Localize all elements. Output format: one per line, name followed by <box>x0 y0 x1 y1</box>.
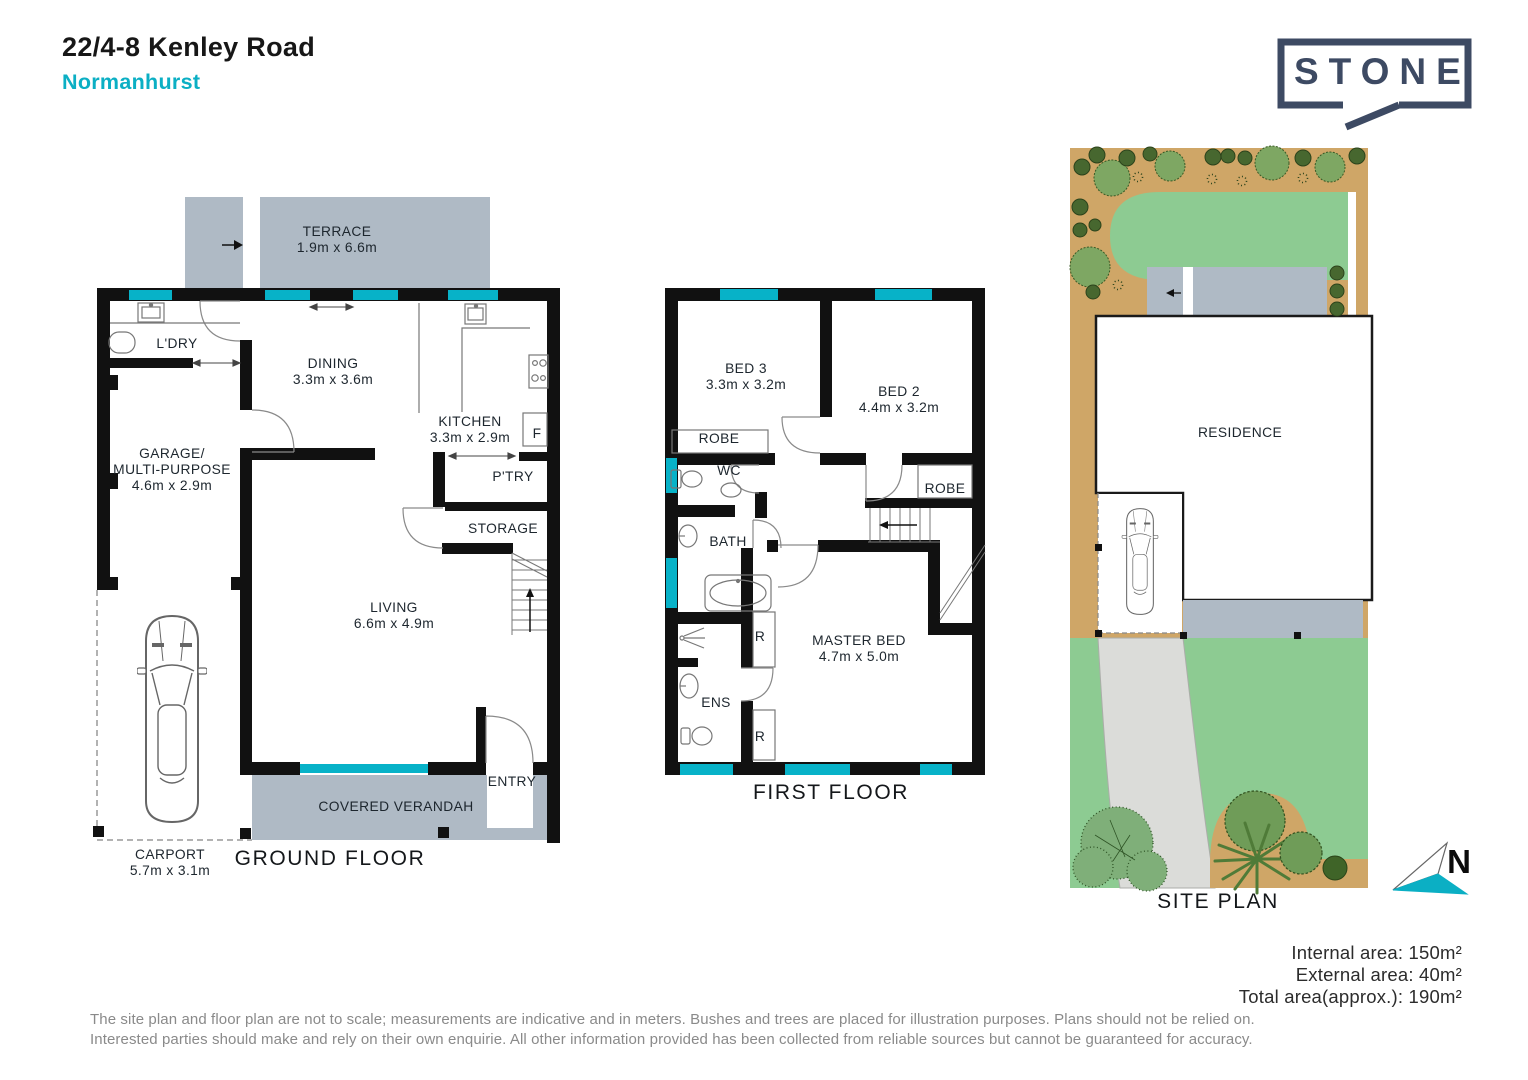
room-label-terrace: TERRACE 1.9m x 6.6m <box>297 224 377 256</box>
car-icon <box>1122 509 1158 615</box>
room-label-pantry: P'TRY <box>492 469 533 485</box>
logo-wordmark: STONE <box>1284 51 1466 93</box>
room-label-living: LIVING 6.6m x 4.9m <box>354 600 434 632</box>
site-terrace <box>1147 267 1327 318</box>
room-label-bath: BATH <box>709 534 746 550</box>
disclaimer-line-1: The site plan and floor plan are not to … <box>90 1010 1255 1030</box>
room-label-robe1: ROBE <box>699 431 740 447</box>
room-label-bed3: BED 3 3.3m x 3.2m <box>706 361 786 393</box>
room-label-carport: CARPORT 5.7m x 3.1m <box>130 847 210 879</box>
room-label-wc: WC <box>717 463 741 479</box>
internal-area: Internal area: 150m² <box>1239 942 1462 964</box>
residence-label: RESIDENCE <box>1198 425 1282 441</box>
total-area: Total area(approx.): 190m² <box>1239 986 1462 1008</box>
car-icon <box>137 616 207 822</box>
north-label: N <box>1447 843 1471 881</box>
site-path-strip <box>1348 192 1356 318</box>
room-label-robe2: ROBE <box>925 481 966 497</box>
page-title: 22/4-8 Kenley Road <box>62 32 315 63</box>
room-label-robe-r2: R <box>755 729 765 745</box>
room-label-robe-r1: R <box>755 629 765 645</box>
room-label-fridge: F <box>533 426 542 442</box>
room-label-garage: GARAGE/ MULTI-PURPOSE 4.6m x 2.9m <box>113 446 231 494</box>
ground-stairs <box>512 553 547 635</box>
room-label-entry: ENTRY <box>488 774 537 790</box>
external-area: External area: 40m² <box>1239 964 1462 986</box>
first-stairs <box>868 508 985 620</box>
site-plan-title: SITE PLAN <box>1157 894 1279 910</box>
disclaimer: The site plan and floor plan are not to … <box>90 1010 1255 1049</box>
room-label-master-bed: MASTER BED 4.7m x 5.0m <box>812 633 906 665</box>
room-label-bed2: BED 2 4.4m x 3.2m <box>859 384 939 416</box>
ground-floor-title: GROUND FLOOR <box>235 851 426 867</box>
first-floor-title: FIRST FLOOR <box>753 785 909 801</box>
site-plan <box>1065 145 1375 905</box>
suburb-subtitle: Normanhurst <box>62 70 315 95</box>
site-verandah <box>1183 600 1363 638</box>
room-label-kitchen: KITCHEN 3.3m x 2.9m <box>430 414 510 446</box>
room-label-dining: DINING 3.3m x 3.6m <box>293 356 373 388</box>
floorplan-page: 22/4-8 Kenley Road Normanhurst STONE <box>0 0 1528 1080</box>
disclaimer-line-2: Interested parties should make and rely … <box>90 1030 1255 1050</box>
room-label-laundry: L'DRY <box>156 336 197 352</box>
site-lawn-top <box>1110 192 1348 280</box>
header: 22/4-8 Kenley Road Normanhurst <box>62 32 315 95</box>
areas-summary: Internal area: 150m² External area: 40m²… <box>1239 942 1462 1008</box>
north-arrow-icon <box>1385 833 1505 903</box>
first-floor-plan <box>655 280 995 800</box>
room-label-verandah: COVERED VERANDAH <box>318 799 473 815</box>
room-label-ensuite: ENS <box>701 695 731 711</box>
room-label-storage: STORAGE <box>468 521 538 537</box>
